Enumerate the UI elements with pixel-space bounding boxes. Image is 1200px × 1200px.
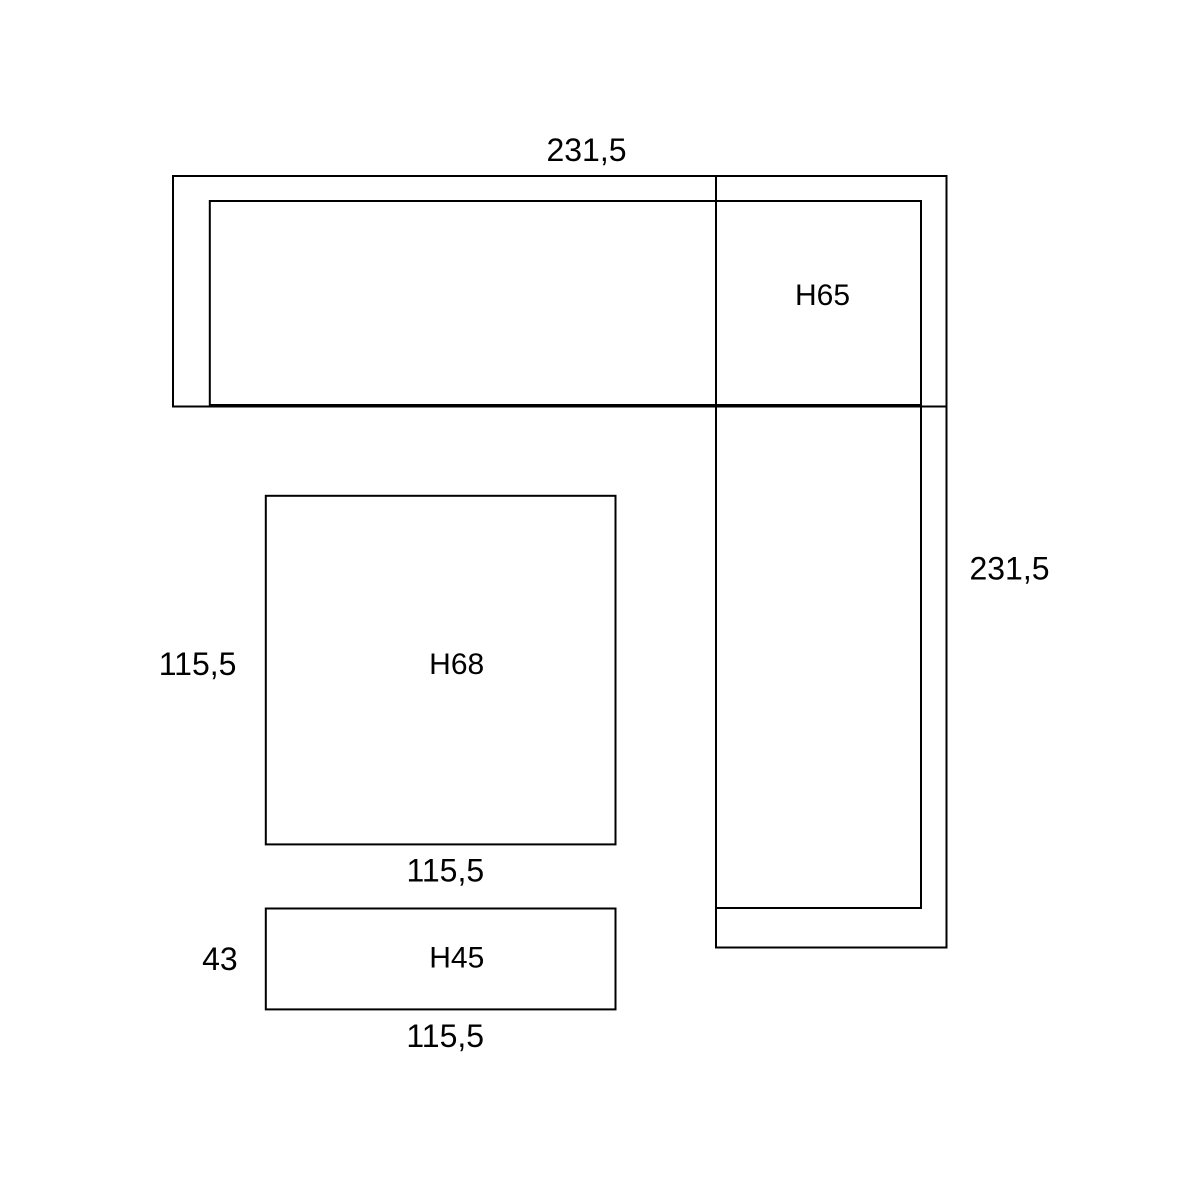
svg-text:43: 43 xyxy=(202,941,238,977)
svg-text:231,5: 231,5 xyxy=(546,132,626,168)
svg-text:H65: H65 xyxy=(795,279,850,312)
svg-text:H45: H45 xyxy=(429,942,484,975)
svg-text:115,5: 115,5 xyxy=(406,852,484,888)
svg-text:H68: H68 xyxy=(429,648,484,681)
svg-text:231,5: 231,5 xyxy=(969,551,1049,587)
svg-text:115,5: 115,5 xyxy=(406,1018,484,1054)
svg-text:115,5: 115,5 xyxy=(159,646,237,682)
